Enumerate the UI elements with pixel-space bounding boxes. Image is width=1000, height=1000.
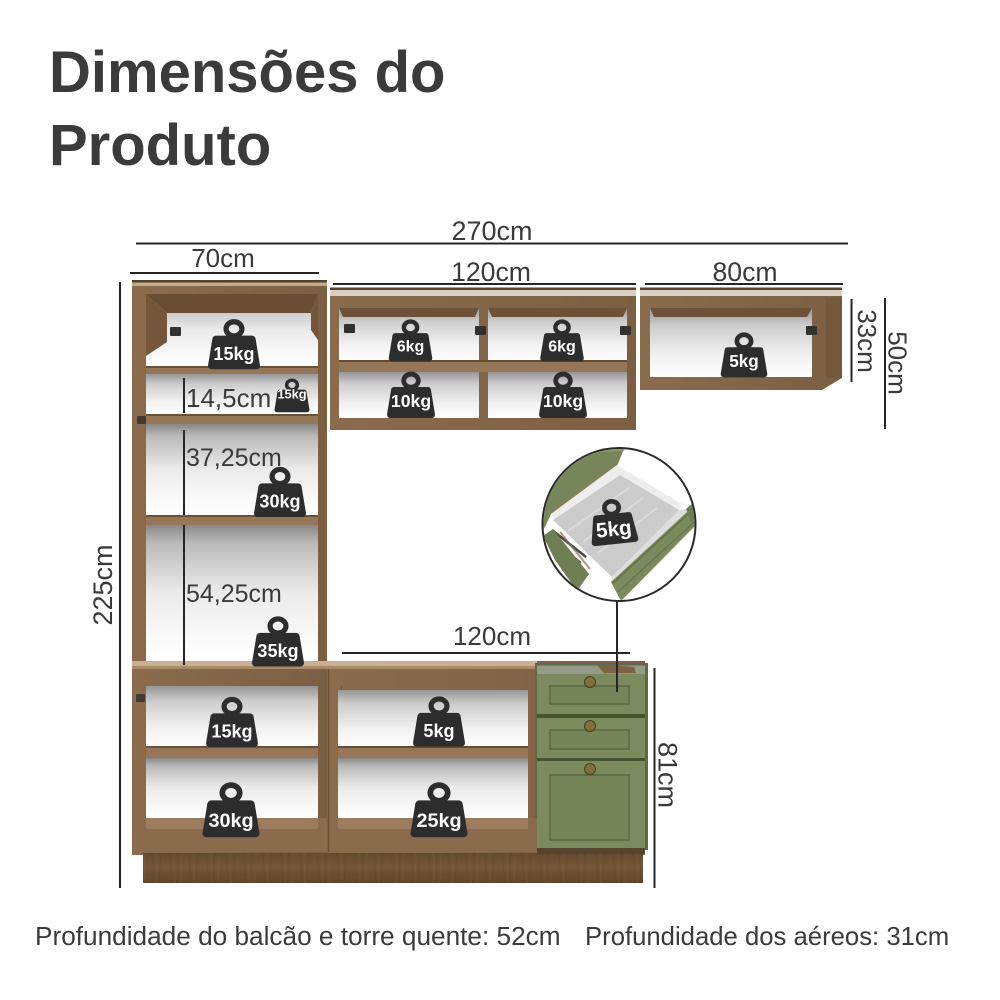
- svg-text:25kg: 25kg: [416, 810, 461, 832]
- svg-text:15kg: 15kg: [211, 722, 252, 742]
- svg-text:270cm: 270cm: [451, 216, 532, 246]
- svg-text:Produto: Produto: [49, 113, 271, 178]
- svg-text:6kg: 6kg: [548, 338, 576, 356]
- svg-text:Profundidade dos aéreos: 31cm: Profundidade dos aéreos: 31cm: [585, 923, 949, 951]
- svg-text:80cm: 80cm: [712, 257, 777, 287]
- svg-text:120cm: 120cm: [453, 621, 531, 651]
- svg-text:6kg: 6kg: [397, 338, 425, 356]
- svg-text:30kg: 30kg: [208, 810, 253, 832]
- svg-text:10kg: 10kg: [391, 391, 431, 411]
- svg-text:30kg: 30kg: [259, 492, 300, 512]
- svg-text:15kg: 15kg: [213, 344, 254, 364]
- svg-text:10kg: 10kg: [543, 391, 583, 411]
- svg-text:54,25cm: 54,25cm: [186, 580, 282, 608]
- svg-text:5kg: 5kg: [595, 516, 633, 543]
- svg-text:5kg: 5kg: [423, 721, 454, 741]
- svg-text:14,5cm: 14,5cm: [186, 383, 271, 413]
- svg-text:5kg: 5kg: [729, 351, 759, 371]
- svg-text:225cm: 225cm: [88, 544, 118, 625]
- svg-text:15kg: 15kg: [277, 386, 306, 401]
- svg-text:35kg: 35kg: [257, 641, 298, 661]
- svg-text:Profundidade do balcão e torre: Profundidade do balcão e torre quente: 5…: [35, 921, 561, 951]
- svg-text:33cm: 33cm: [852, 309, 882, 373]
- svg-text:81cm: 81cm: [653, 742, 683, 808]
- svg-text:Dimensões do: Dimensões do: [49, 40, 445, 105]
- svg-text:37,25cm: 37,25cm: [186, 444, 282, 472]
- svg-text:120cm: 120cm: [451, 257, 531, 287]
- svg-text:50cm: 50cm: [883, 331, 913, 395]
- svg-text:70cm: 70cm: [191, 243, 255, 273]
